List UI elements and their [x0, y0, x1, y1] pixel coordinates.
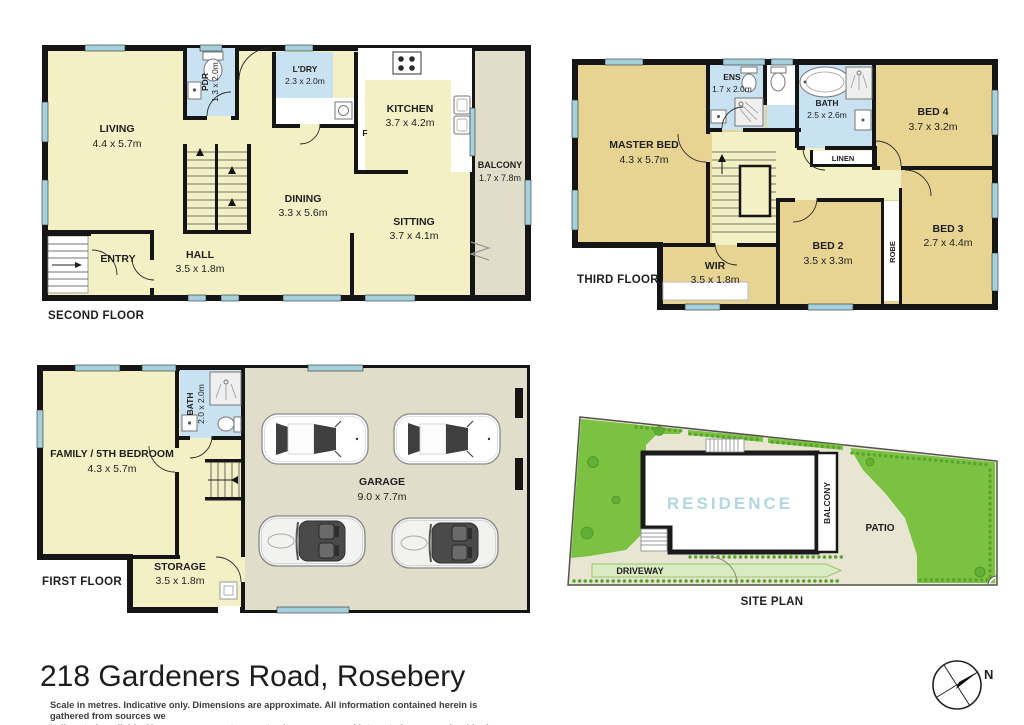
toilet-icon [218, 417, 241, 432]
basin-icon [855, 110, 871, 130]
bed2-label: BED 2 [813, 240, 844, 252]
toilet-icon [771, 67, 786, 91]
second-floor-label: SECOND FLOOR [48, 310, 145, 322]
hallway [873, 170, 901, 200]
svg-text:1.3 x 2.0m: 1.3 x 2.0m [210, 62, 220, 102]
dining-dims: 3.3 x 5.6m [278, 207, 327, 219]
sitting-label: SITTING [393, 216, 434, 228]
washer-icon [335, 102, 352, 119]
storage-label: STORAGE [154, 561, 206, 573]
balcony-dims: 1.7 x 7.8m [479, 173, 521, 183]
laundry-dims: 2.3 x 2.0m [285, 76, 325, 86]
bed3-label: BED 3 [933, 223, 964, 235]
wir-dims: 3.5 x 1.8m [690, 274, 739, 286]
bed2-dims: 3.5 x 3.3m [803, 255, 852, 267]
living-dims: 4.4 x 5.7m [92, 138, 141, 150]
site-plan: RESIDENCE BALCONY PATIO DRIVEWAY SITE PL… [560, 400, 1024, 612]
shower-icon [846, 67, 872, 99]
convertible-car-icon [392, 518, 498, 568]
second-floor-plan: LIVING 4.4 x 5.7m PDR 1.3 x 2.0m L'DRY 2… [35, 40, 535, 332]
room-laundry [276, 52, 333, 98]
fridge-label: F [362, 128, 367, 138]
balcony-label: BALCONY [478, 160, 523, 170]
wir-label: WIR [705, 260, 726, 272]
garage-dims: 9.0 x 7.7m [357, 491, 406, 503]
living-label: LIVING [99, 123, 134, 135]
storage-dims: 3.5 x 1.8m [155, 575, 204, 587]
car-icon [394, 414, 500, 464]
entry-stairs [48, 231, 91, 293]
svg-text:ROBE: ROBE [888, 241, 897, 263]
property-address: 218 Gardeners Road, Rosebery [40, 660, 465, 694]
bed3-dims: 2.7 x 4.4m [923, 237, 972, 249]
first-floor-label: FIRST FLOOR [42, 576, 122, 588]
garage-label: GARAGE [359, 476, 405, 488]
master-bed-dims: 4.3 x 5.7m [619, 154, 668, 166]
kitchen-label: KITCHEN [387, 103, 434, 115]
svg-text:2.0 x 2.0m: 2.0 x 2.0m [196, 384, 206, 424]
site-balcony-label: BALCONY [822, 482, 832, 524]
basin-icon [711, 110, 726, 123]
site-plan-label: SITE PLAN [741, 596, 804, 608]
third-floor-label: THIRD FLOOR [577, 274, 659, 286]
ensuite-label: ENS [723, 72, 741, 82]
bath-label: BATH [816, 98, 839, 108]
entry-label: ENTRY [100, 253, 135, 265]
svg-text:PDR: PDR [200, 73, 210, 91]
room-garage [245, 368, 527, 610]
basin-icon [182, 415, 197, 431]
room-bath [767, 105, 797, 130]
first-floor-plan: FAMILY / 5TH BEDROOM 4.3 x 5.7m BATH 2.0… [30, 360, 542, 622]
convertible-car-icon [259, 516, 365, 566]
disclaimer-line-1: Scale in metres. Indicative only. Dimens… [50, 700, 500, 723]
master-bed-label: MASTER BED [609, 139, 679, 151]
sitting-dims: 3.7 x 4.1m [389, 230, 438, 242]
cooktop-icon [393, 52, 421, 74]
shower-icon [735, 98, 763, 126]
laundry-label: L'DRY [293, 64, 318, 74]
third-floor-plan: MASTER BED 4.3 x 5.7m ENS 1.7 x 2.0m BAT… [565, 40, 1024, 325]
compass: N [925, 648, 1020, 718]
family-label: FAMILY / 5TH BEDROOM [50, 448, 174, 460]
disclaimer: Scale in metres. Indicative only. Dimens… [50, 700, 500, 725]
bed4-label: BED 4 [918, 106, 949, 118]
hall-label: HALL [186, 249, 215, 261]
floorplan-page: LIVING 4.4 x 5.7m PDR 1.3 x 2.0m L'DRY 2… [0, 0, 1024, 725]
dining-label: DINING [285, 193, 322, 205]
driveway-label: DRIVEWAY [616, 566, 663, 576]
kitchen-dims: 3.7 x 4.2m [385, 117, 434, 129]
shower-icon [210, 372, 241, 405]
storage-box-icon [220, 582, 237, 599]
linen-label: LINEN [832, 154, 855, 163]
bath-dims: 2.5 x 2.6m [807, 110, 847, 120]
robe-label: ROBE [888, 241, 897, 263]
compass-line [944, 665, 970, 706]
svg-text:BALCONY: BALCONY [822, 482, 832, 524]
bathtub-icon [800, 67, 850, 97]
car-icon [262, 414, 368, 464]
north-label: N [984, 667, 993, 682]
residence-label: RESIDENCE [667, 494, 793, 513]
hall-dims: 3.5 x 1.8m [175, 263, 224, 275]
patio-label: PATIO [865, 523, 894, 534]
ensuite-dims: 1.7 x 2.0m [712, 84, 752, 94]
bed4-dims: 3.7 x 3.2m [908, 121, 957, 133]
svg-text:BATH: BATH [185, 393, 195, 416]
family-dims: 4.3 x 5.7m [87, 463, 136, 475]
